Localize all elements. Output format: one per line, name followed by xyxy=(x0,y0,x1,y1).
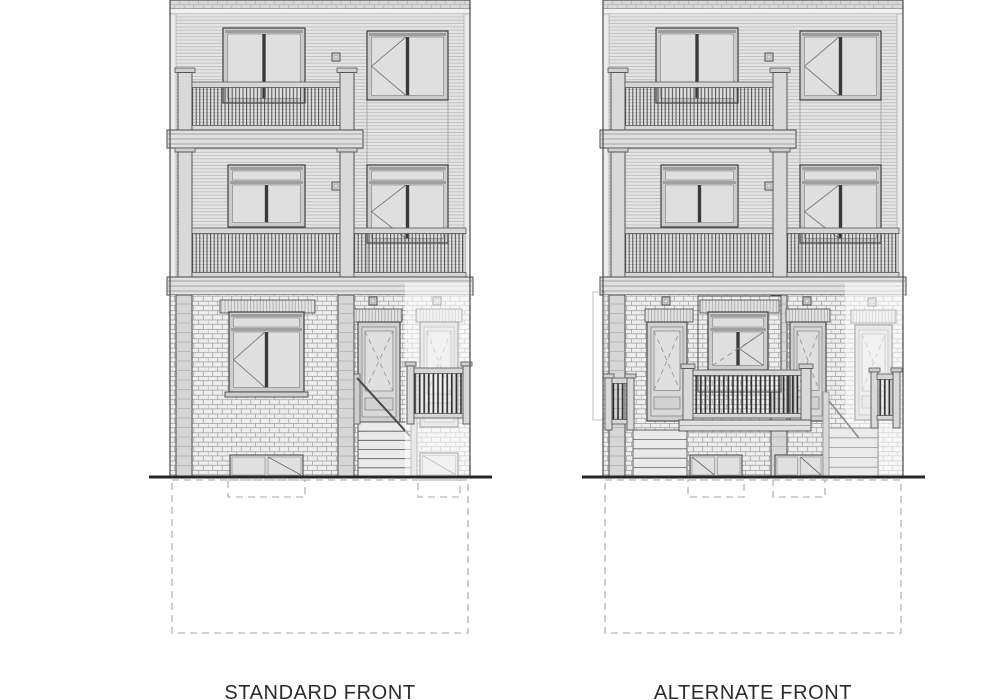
vent xyxy=(765,53,773,61)
balcony-fascia xyxy=(167,130,363,148)
elevation-sheet: STANDARD FRONT ALTERNATE FRONT xyxy=(0,0,991,700)
window xyxy=(708,312,768,370)
foundation-outline xyxy=(605,480,901,633)
window-well xyxy=(688,480,744,497)
balcony-railing xyxy=(192,82,340,130)
brick-lintel xyxy=(700,300,779,313)
ground-storey-alternate xyxy=(593,283,905,477)
vent xyxy=(332,53,340,61)
elevation-label-alternate-front: ALTERNATE FRONT xyxy=(654,682,852,700)
basement-window xyxy=(230,455,303,477)
window-well xyxy=(773,480,825,497)
window-sill xyxy=(225,392,308,397)
brick-lintel xyxy=(220,300,315,313)
vent xyxy=(332,182,340,190)
standard-front-elevation xyxy=(149,0,492,633)
foundation-outline xyxy=(172,480,468,633)
ground-storey-standard xyxy=(170,283,472,477)
window xyxy=(800,31,881,100)
stairs xyxy=(823,428,878,477)
window xyxy=(228,165,305,227)
balcony-railing xyxy=(192,228,340,277)
window xyxy=(661,165,738,227)
basement-window xyxy=(775,455,823,477)
porch-railing xyxy=(693,370,801,418)
basement-window xyxy=(690,455,742,477)
vent xyxy=(662,297,670,305)
brick-lintel xyxy=(645,309,693,322)
balcony-railing xyxy=(787,228,899,277)
balcony-fascia xyxy=(600,130,796,148)
entry-door xyxy=(647,322,687,421)
vent xyxy=(803,297,811,305)
elevation-label-standard-front: STANDARD FRONT xyxy=(224,682,415,700)
window-well xyxy=(228,480,305,497)
upper-storeys xyxy=(167,0,473,295)
porch-railing xyxy=(877,374,893,420)
window xyxy=(229,312,304,392)
alternate-front-elevation xyxy=(582,0,925,633)
vent xyxy=(765,182,773,190)
balcony-railing xyxy=(625,228,773,277)
stair-rail-post xyxy=(823,392,829,477)
porch-railing xyxy=(612,378,627,424)
balcony-railing xyxy=(354,228,466,277)
elevation-drawing xyxy=(0,0,991,700)
balcony-railing xyxy=(625,82,773,130)
window xyxy=(367,31,448,100)
vent xyxy=(369,297,377,305)
window-well xyxy=(418,480,460,497)
brick-pilaster xyxy=(338,295,354,477)
upper-storeys xyxy=(600,0,906,295)
entry-door xyxy=(358,322,400,422)
stairs xyxy=(633,430,687,477)
brick-pilaster xyxy=(176,295,192,477)
porch-railing xyxy=(414,368,463,418)
brick-lintel xyxy=(786,309,830,322)
brick-lintel xyxy=(354,309,402,322)
